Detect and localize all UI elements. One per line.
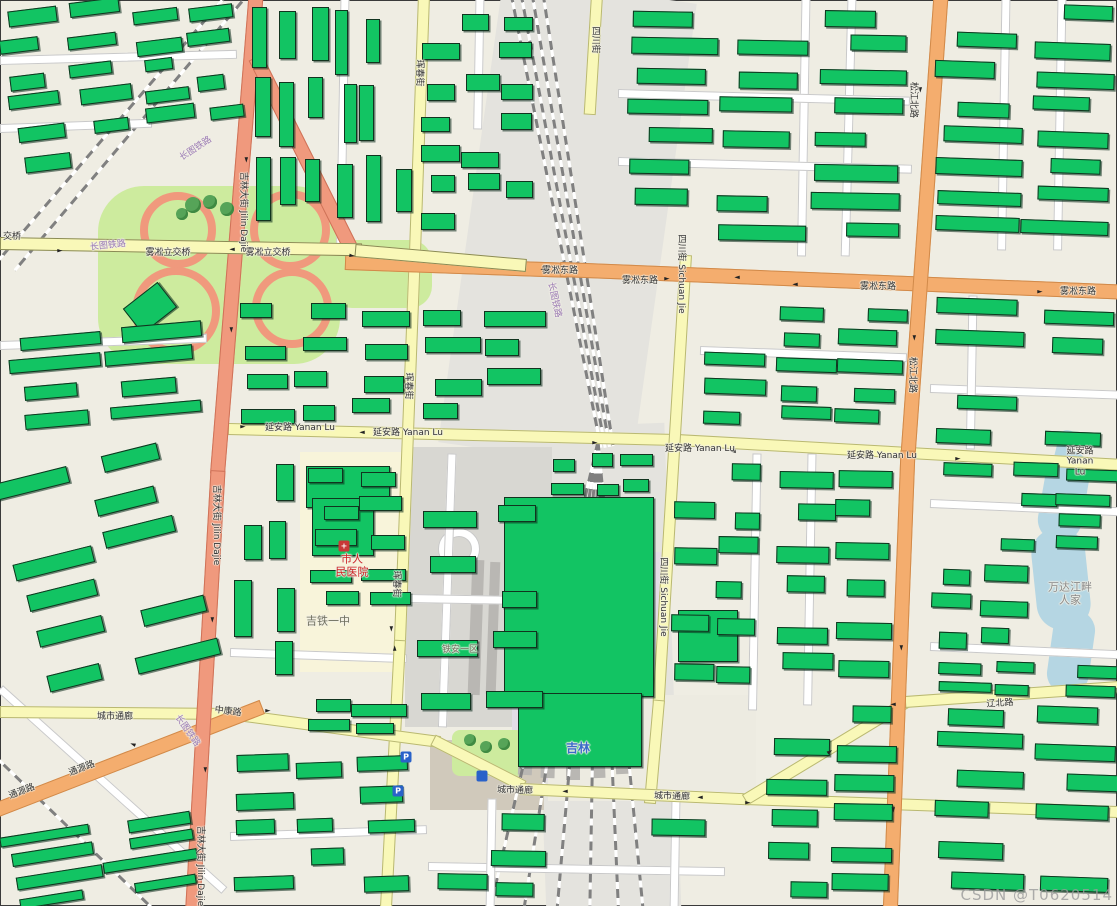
parking-icon: P <box>401 752 412 763</box>
watermark: CSDN @T0620514 <box>960 886 1113 904</box>
poi-layer: +PP <box>0 0 1117 906</box>
map-canvas[interactable]: ►►►►►►►►►►►►►►►►►►►►►►►►►►►►►► 雾凇立交桥雾凇立交… <box>0 0 1117 906</box>
hospital-icon: + <box>339 541 350 552</box>
parking-icon <box>477 771 488 782</box>
parking-icon: P <box>393 786 404 797</box>
